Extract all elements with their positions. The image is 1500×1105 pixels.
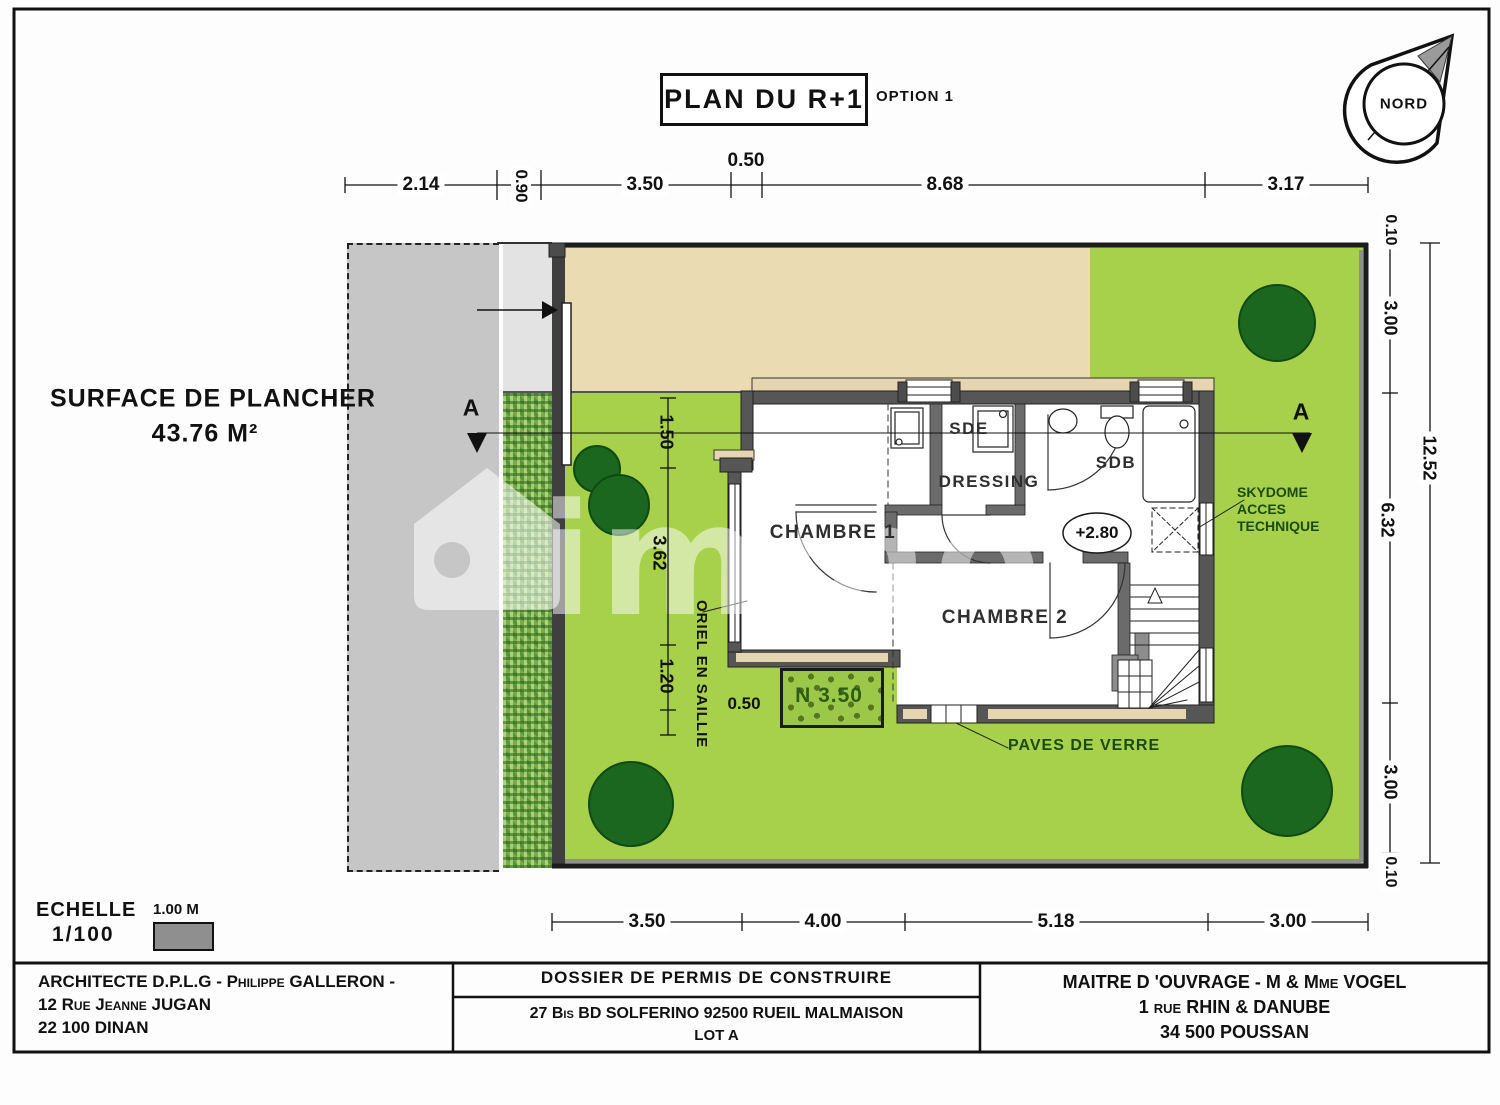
- dossier-address: 27 Bis BD SOLFERINO 92500 RUEIL MALMAISO…: [453, 1005, 980, 1023]
- surface-title: SURFACE DE PLANCHER: [50, 385, 376, 414]
- architect-line3: 22 100 DINAN: [38, 1016, 395, 1039]
- room-dressing-label: DRESSING: [939, 472, 1040, 492]
- dim-top-0-90: 0.90: [511, 165, 531, 206]
- architect-line2: 12 Rue Jeanne JUGAN: [38, 993, 395, 1016]
- skydome-label-line3: TECHNIQUE: [1237, 518, 1319, 534]
- dim-bottom-3-00: 3.00: [1265, 911, 1312, 933]
- skydome-label-line2: ACCES: [1237, 501, 1286, 517]
- oriel-en-saillie-label: ORIEL EN SAILLIE: [693, 600, 710, 748]
- dim-right-3-00-top: 3.00: [1380, 296, 1401, 339]
- owner-line3: 34 500 POUSSAN: [980, 1020, 1489, 1045]
- planter-label: N 3.50: [795, 684, 863, 708]
- dim-top-8-68: 8.68: [922, 174, 969, 196]
- dossier-lot: LOT A: [453, 1027, 980, 1044]
- skydome-label-line1: SKYDOME: [1237, 484, 1308, 500]
- titleblock-architect: ARCHITECTE D.P.L.G - Philippe GALLERON -…: [38, 970, 395, 1039]
- room-chambre2-label: CHAMBRE 2: [942, 607, 1068, 629]
- owner-line1: MAITRE D 'OUVRAGE - M & Mme VOGEL: [980, 970, 1489, 995]
- dim-bottom-3-50: 3.50: [624, 911, 671, 933]
- room-chambre1-label: CHAMBRE 1: [770, 522, 896, 544]
- level-value: +2.80: [1075, 523, 1118, 543]
- owner-line2: 1 rue RHIN & DANUBE: [980, 995, 1489, 1020]
- dim-top-3-50: 3.50: [622, 174, 669, 196]
- dim-right-total-12-52: 12.52: [1419, 431, 1440, 484]
- surface-value: 43.76 M²: [152, 420, 259, 449]
- dim-bottom-4-00: 4.00: [800, 911, 847, 933]
- plan-title: PLAN DU R+1: [664, 84, 864, 115]
- dim-right-3-00-bottom: 3.00: [1380, 760, 1401, 803]
- paves-de-verre-label: PAVES DE VERRE: [1008, 737, 1160, 755]
- dim-top-3-17: 3.17: [1263, 174, 1310, 196]
- dim-top-2-14: 2.14: [398, 174, 445, 196]
- dossier-header: DOSSIER DE PERMIS DE CONSTRUIRE: [453, 968, 980, 988]
- scalebar-meter-label: 1.00 M: [153, 901, 199, 918]
- scalebar-swatch: [153, 922, 214, 951]
- section-marker-a-right: A: [1293, 399, 1310, 426]
- room-sdb-label: SDB: [1096, 453, 1136, 473]
- plan-option-label: OPTION 1: [876, 88, 954, 105]
- echelle-ratio: 1/100: [52, 923, 115, 947]
- dim-right-6-32: 6.32: [1377, 498, 1398, 541]
- dim-right-0-10-bottom: 0.10: [1381, 852, 1399, 891]
- room-sde-label: SDE: [949, 419, 988, 439]
- section-marker-a-left: A: [463, 395, 480, 422]
- dim-top-0-50: 0.50: [723, 150, 770, 172]
- dim-inner-1-20: 1.20: [656, 654, 677, 697]
- skydome-hatch: [1152, 508, 1198, 552]
- dim-inner-1-50: 1.50: [656, 410, 677, 453]
- dim-oriel-0-50: 0.50: [722, 694, 765, 714]
- dim-inner-3-62: 3.62: [649, 531, 670, 574]
- titleblock-owner: MAITRE D 'OUVRAGE - M & Mme VOGEL 1 rue …: [980, 970, 1489, 1045]
- plan-title-box: PLAN DU R+1: [660, 73, 868, 126]
- architect-line1: ARCHITECTE D.P.L.G - Philippe GALLERON -: [38, 970, 395, 993]
- north-label: NORD: [1380, 96, 1428, 113]
- dim-bottom-5-18: 5.18: [1033, 911, 1080, 933]
- dim-right-0-10-top: 0.10: [1381, 210, 1399, 249]
- floor-plan-page: immo: [0, 0, 1500, 1105]
- echelle-label: ECHELLE: [36, 899, 136, 922]
